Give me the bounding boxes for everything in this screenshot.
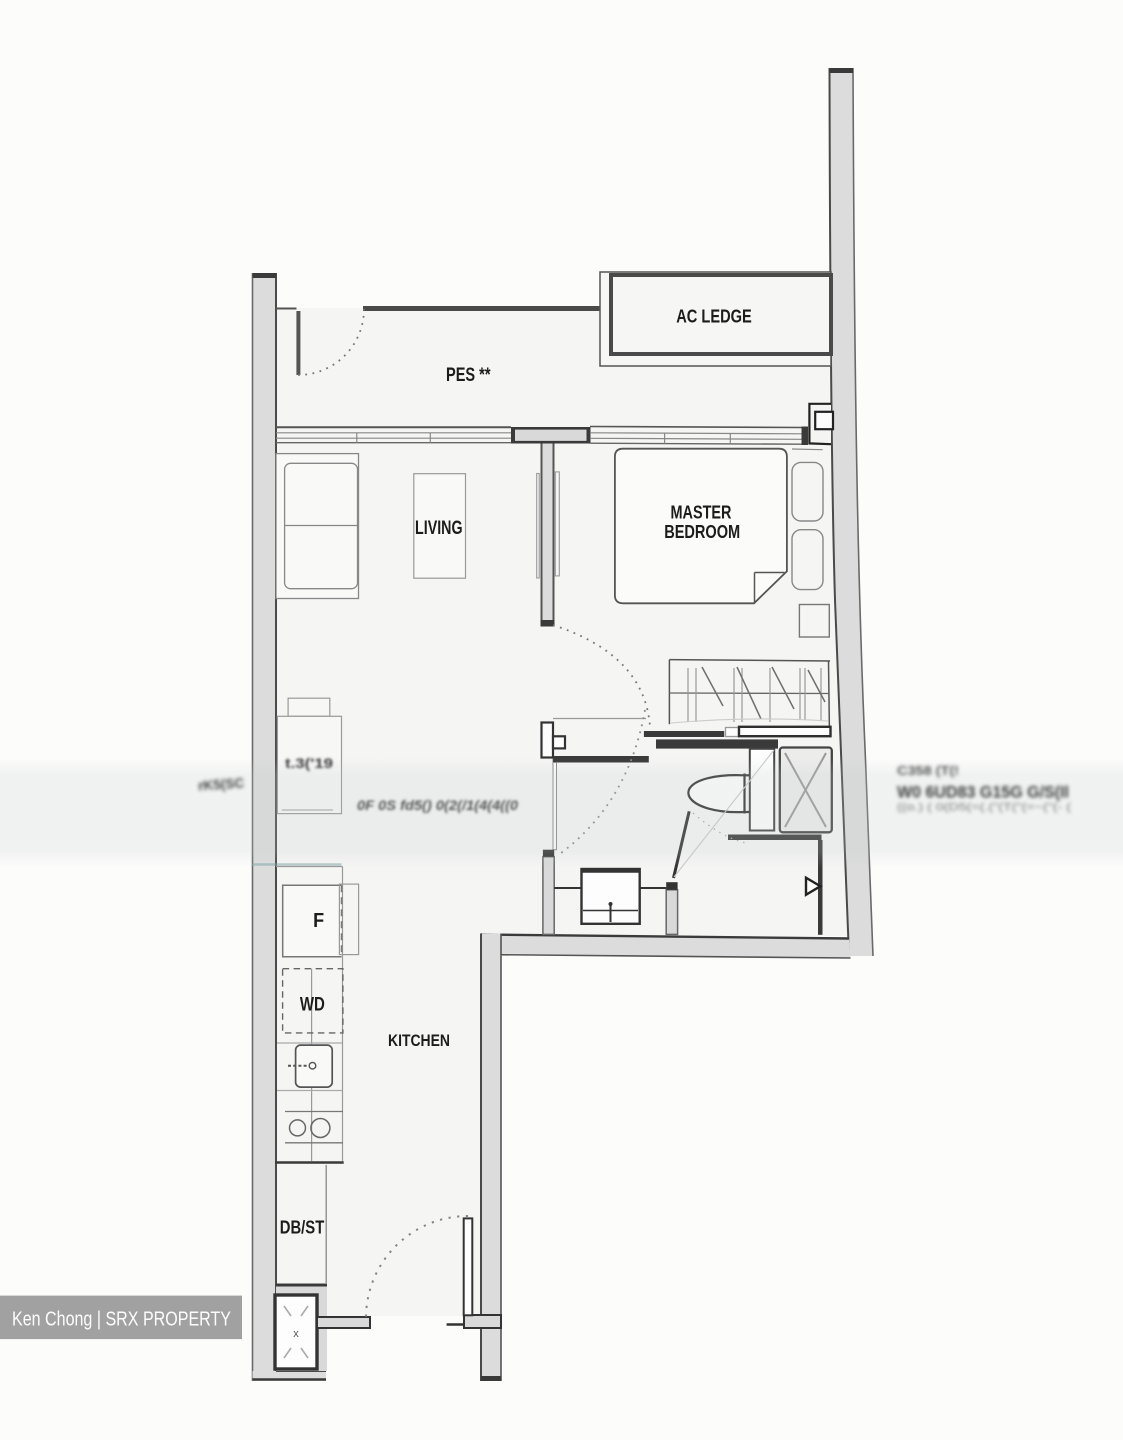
svg-text:Ken Chong | SRX PROPERTY: Ken Chong | SRX PROPERTY (12, 1308, 231, 1331)
svg-text:0F 0S fd5() 0(2(/1(4(4((0: 0F 0S fd5() 0(2(/1(4(4((0 (357, 797, 518, 813)
svg-text:x: x (293, 1328, 299, 1340)
svg-text:BEDROOM: BEDROOM (664, 521, 740, 542)
svg-text:MASTER: MASTER (671, 501, 732, 522)
svg-text:WD: WD (300, 995, 325, 1016)
svg-text:F: F (313, 910, 324, 932)
svg-text:C358 (T(!: C358 (T(! (897, 763, 959, 778)
svg-text:W0 6UD83 G15G G/S(Il: W0 6UD83 G15G G/S(Il (897, 783, 1069, 802)
svg-text:LIVING: LIVING (415, 517, 463, 539)
svg-text:((o.) ( 0(D5(=(.("(T("(=~("(-: ((o.) ( 0(D5(=(.("(T("(=~("(- ( (897, 802, 1071, 814)
svg-text:PES **: PES ** (446, 365, 491, 386)
svg-text:DB/ST: DB/ST (280, 1217, 325, 1238)
svg-text:AC LEDGE: AC LEDGE (676, 307, 752, 327)
svg-text:KITCHEN: KITCHEN (388, 1031, 450, 1050)
